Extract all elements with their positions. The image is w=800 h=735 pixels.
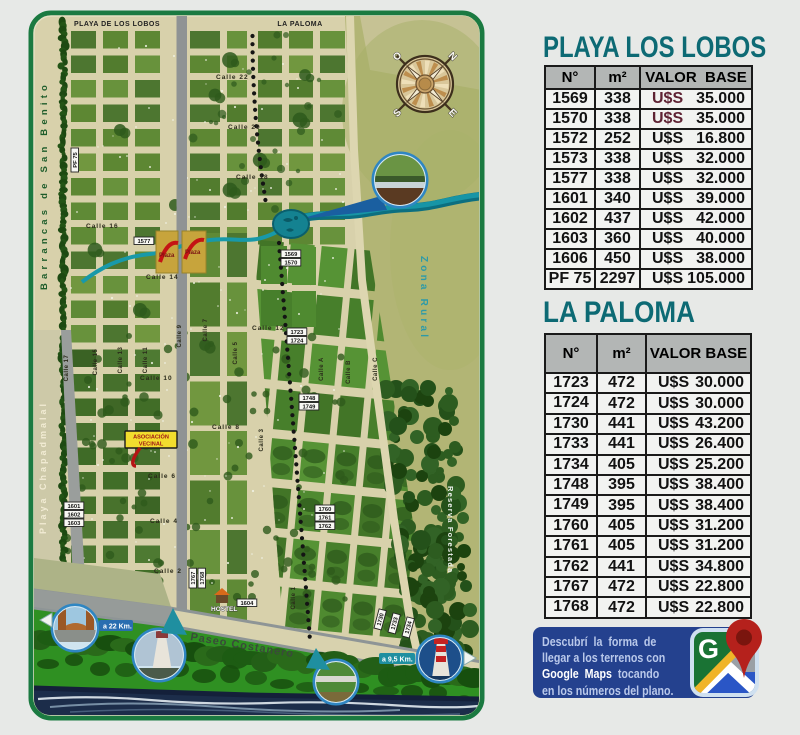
svg-text:Playa Chapadmalal: Playa Chapadmalal: [38, 401, 48, 534]
svg-text:1723: 1723: [290, 330, 304, 336]
svg-text:1768: 1768: [200, 571, 206, 585]
svg-text:PLAYA DE LOS LOBOS: PLAYA DE LOS LOBOS: [74, 21, 160, 28]
svg-text:Calle 11: Calle 11: [143, 347, 149, 374]
svg-text:Calle 5: Calle 5: [233, 341, 239, 364]
svg-text:Calle 3: Calle 3: [259, 428, 265, 451]
svg-text:1604: 1604: [240, 601, 254, 607]
svg-text:Calle 13: Calle 13: [118, 346, 124, 373]
svg-text:Calle 16: Calle 16: [86, 223, 119, 230]
svg-text:Calle 2: Calle 2: [154, 568, 182, 575]
svg-text:Calle 12: Calle 12: [252, 325, 285, 332]
svg-text:Calle 8: Calle 8: [212, 424, 240, 431]
svg-text:Calle B: Calle B: [346, 360, 352, 384]
svg-text:Plaza: Plaza: [185, 250, 201, 256]
svg-text:VECINAL: VECINAL: [139, 442, 164, 448]
svg-text:a 9,5 Km.: a 9,5 Km.: [382, 657, 413, 664]
svg-text:1749: 1749: [302, 404, 316, 410]
svg-text:Calle 18: Calle 18: [236, 174, 269, 181]
svg-text:Calle 6: Calle 6: [148, 473, 176, 480]
svg-text:Barrancas de San Benito: Barrancas de San Benito: [39, 81, 50, 290]
svg-text:LA PALOMA: LA PALOMA: [277, 21, 322, 28]
svg-text:G: G: [698, 634, 719, 664]
svg-text:1748: 1748: [302, 396, 316, 402]
svg-text:Calle A: Calle A: [319, 357, 325, 381]
svg-text:Calle 10: Calle 10: [140, 375, 173, 382]
svg-text:Calle 20: Calle 20: [228, 124, 261, 131]
svg-text:Calle C: Calle C: [373, 357, 379, 381]
svg-text:1762: 1762: [318, 524, 331, 530]
svg-text:1577: 1577: [137, 239, 150, 245]
svg-text:Calle 7: Calle 7: [203, 318, 209, 341]
svg-text:Calle 17: Calle 17: [64, 354, 70, 381]
svg-text:1767: 1767: [191, 572, 197, 585]
svg-text:1724: 1724: [290, 338, 304, 344]
svg-text:1570: 1570: [284, 260, 297, 266]
svg-text:1603: 1603: [67, 521, 81, 527]
svg-text:Calle 1: Calle 1: [291, 586, 297, 609]
svg-text:Calle 9: Calle 9: [177, 324, 183, 347]
svg-text:HOSTEL: HOSTEL: [211, 606, 237, 613]
svg-text:1602: 1602: [67, 512, 80, 518]
svg-text:Zona Rural: Zona Rural: [418, 256, 429, 340]
svg-text:1569: 1569: [284, 252, 298, 258]
svg-text:Calle 15: Calle 15: [93, 348, 99, 375]
svg-text:Reserva Forestada: Reserva Forestada: [446, 486, 455, 574]
svg-text:Plaza: Plaza: [159, 253, 175, 259]
svg-text:1760: 1760: [318, 507, 331, 513]
svg-text:PF 75: PF 75: [73, 151, 79, 167]
svg-text:ASOCIACIÓN: ASOCIACIÓN: [133, 433, 169, 441]
svg-text:a 22 Km.: a 22 Km.: [103, 624, 132, 631]
svg-text:Calle 22: Calle 22: [216, 74, 249, 81]
svg-text:Calle 14: Calle 14: [146, 274, 179, 281]
svg-text:1601: 1601: [67, 504, 81, 510]
svg-text:Calle 4: Calle 4: [150, 518, 178, 525]
svg-text:1761: 1761: [318, 515, 332, 521]
